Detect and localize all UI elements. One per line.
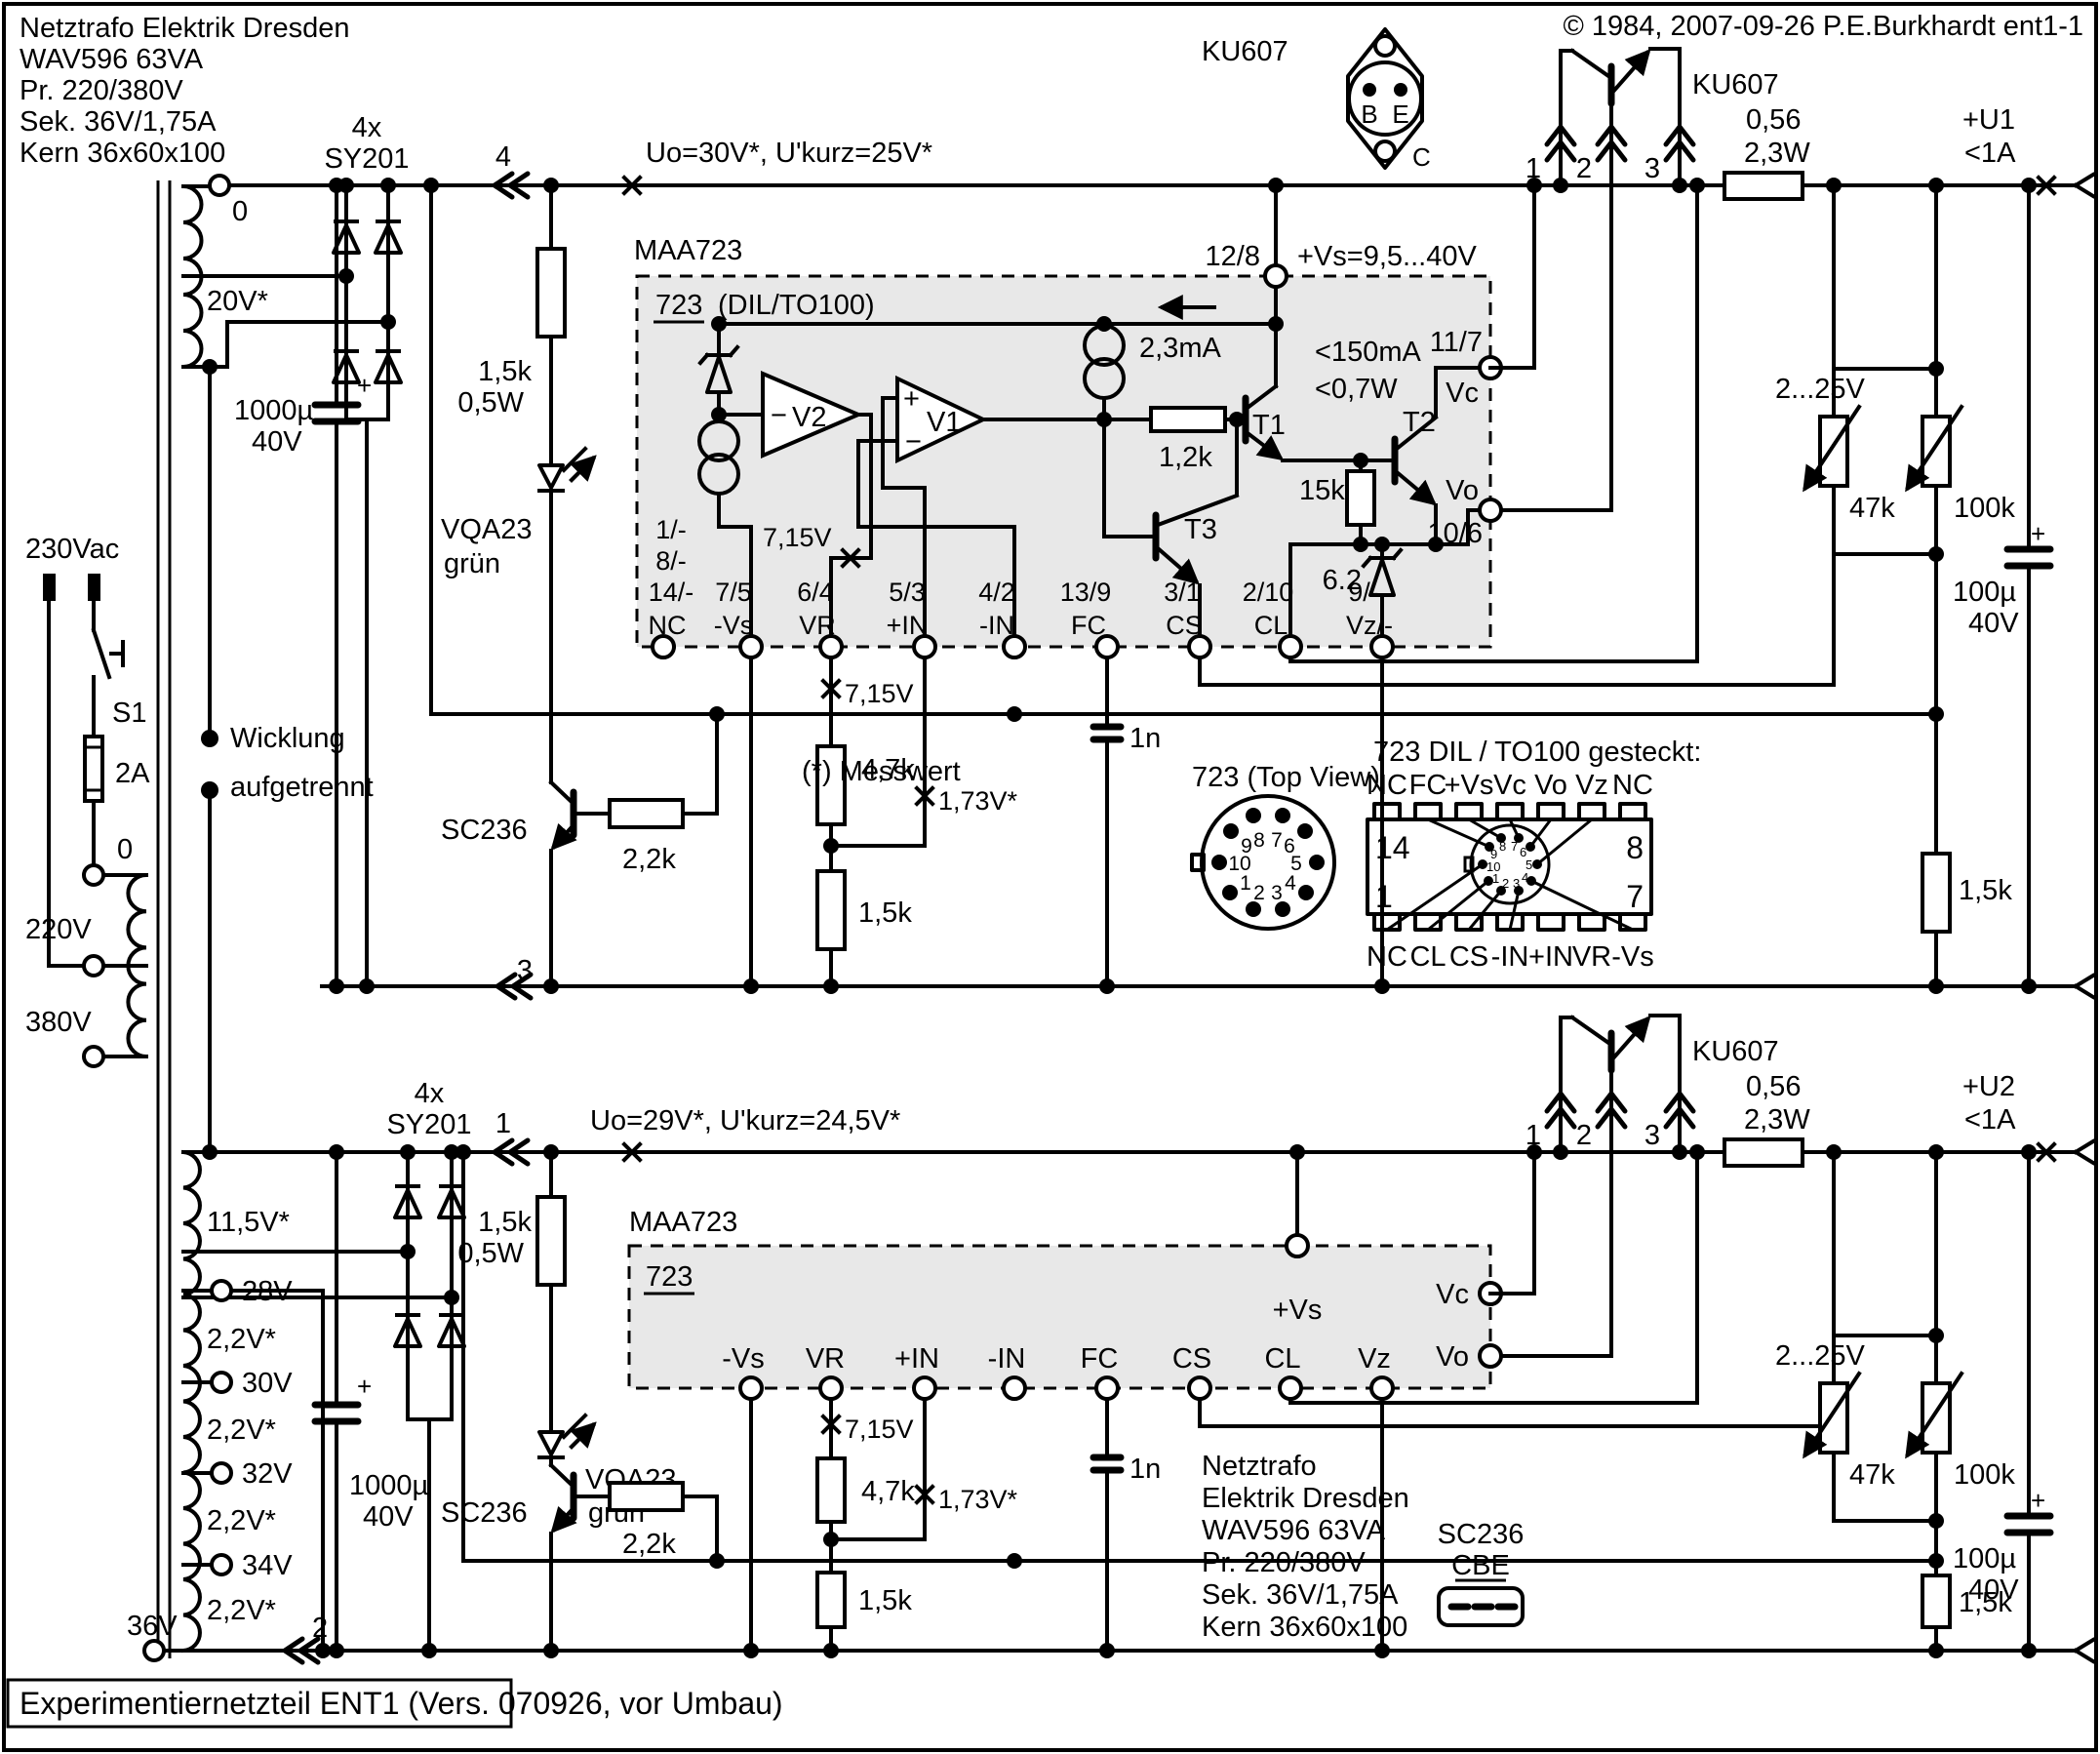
resistor-1k5 (537, 249, 565, 337)
conn-num: 1 (1525, 153, 1541, 184)
pin-vc-name: Vc (1446, 378, 1479, 409)
pin-name: CS (1172, 1343, 1211, 1375)
tr-label: SC236 (441, 1497, 528, 1529)
pin-vo (1480, 1345, 1501, 1367)
resistor-2k2 (610, 1483, 683, 1510)
r-div1-label: 4,7k (861, 1476, 915, 1507)
nc-num: 14/- (649, 578, 694, 607)
winding-0-label: 0 (232, 196, 248, 227)
tv-pin: 4 (1285, 872, 1296, 895)
dil-pin: 1 (1492, 871, 1499, 886)
v2-label: V2 (792, 402, 826, 433)
dil-pin: 7 (1511, 839, 1518, 854)
pin-name: CL (1264, 1343, 1300, 1375)
pin-name: -IN (988, 1343, 1026, 1375)
pin-vo-name: Vo (1446, 475, 1479, 506)
mains-voltage-label: 230Vac (25, 534, 119, 565)
plug-pin-icon (88, 574, 100, 601)
tap-220-terminal (84, 956, 103, 976)
ref-label: 7,15V (763, 523, 832, 552)
vr-divider: 7,15V 4,7k 1,73V* 1,5k (817, 647, 1018, 994)
tap-30v-terminal (212, 1373, 231, 1392)
minus-sign: − (905, 426, 922, 458)
r-div2-label: 1,5k (858, 1585, 912, 1616)
step-label: 2,2V* (207, 1595, 276, 1626)
out-label: +U1 (1962, 104, 2015, 136)
switch-blade (94, 630, 109, 677)
dil-bottom-label: -Vs (1611, 941, 1654, 973)
pot1-label: 47k (1849, 1459, 1895, 1491)
tv-pin: 7 (1271, 829, 1283, 852)
led-symbol (539, 1432, 563, 1455)
pin-name: -Vs (722, 1343, 765, 1375)
pkg-part: SC236 (1438, 1519, 1525, 1550)
uo-label: Uo=29V*, U'kurz=24,5V* (590, 1105, 900, 1136)
pin-vc-label: Vc (1436, 1279, 1469, 1310)
cap-value: 1000µ (349, 1470, 429, 1501)
bridge-qty: 4x (352, 112, 382, 143)
pin-num: 6/4 (797, 578, 834, 607)
pkg-pins: CBE (1451, 1550, 1510, 1581)
pin-num: 9/- (1348, 578, 1379, 607)
to3-c: C (1412, 142, 1431, 172)
r2-label: 15k (1299, 475, 1345, 506)
dil-corner: 7 (1626, 879, 1644, 914)
winding-20v: 0 20V* (183, 176, 396, 375)
pot-47k (1820, 417, 1847, 486)
tap-30v-label: 30V (242, 1368, 293, 1399)
dil-top-label: Vo (1534, 770, 1567, 801)
to3-e: E (1392, 100, 1408, 129)
tv-pin: 2 (1253, 882, 1265, 904)
plus-sign: + (357, 1372, 372, 1401)
fc-cap: 1n (1093, 1388, 1161, 1658)
topview-title: 723 (Top View) (1192, 762, 1380, 793)
tap-0-terminal (84, 865, 103, 885)
transformer-info-block-2: Netztrafo Elektrik Dresden WAV596 63VA P… (1202, 1451, 1409, 1643)
dil-top-label: NC (1367, 770, 1407, 801)
supply1-adjust: 2...25V 47k 100k 1,5k + 100µ 40V (1775, 178, 2050, 994)
v1-label: V1 (927, 407, 961, 438)
pin-num: 2/10 (1243, 578, 1294, 607)
supply2-adjust: 2...25V 47k 100k 1,5k + 100µ 40V (1775, 1144, 2050, 1658)
pin-name: Vz/- (1346, 611, 1393, 640)
supply2-pass: 1 2 3 KU607 0,56 2,3W +U2 <1A (1490, 1016, 2093, 1356)
pin-vs (1287, 1235, 1308, 1256)
resistor-0r56 (1724, 173, 1803, 199)
r-sense-label: 1,5k (1959, 875, 2012, 906)
title-box: Experimentiernetzteil ENT1 (Vers. 070926… (8, 1680, 783, 1727)
info-line: Kern 36x60x100 (1202, 1612, 1407, 1643)
fuse-label: 2A (115, 758, 150, 789)
info-line: Netztrafo (1202, 1451, 1317, 1482)
tap-32v-terminal (212, 1463, 231, 1483)
pin-name: CL (1254, 611, 1288, 640)
pin-name: +IN (887, 611, 929, 640)
dil-pin: 2 (1502, 876, 1509, 891)
tap-34v-terminal (212, 1555, 231, 1575)
resistor-1k5-div (817, 1573, 845, 1627)
tr-label: SC236 (441, 815, 528, 846)
tap-380-terminal (84, 1047, 103, 1066)
cap-out-value: 100µ (1953, 577, 2016, 608)
to3-part: KU607 (1202, 36, 1288, 67)
r-out-value: 0,56 (1746, 104, 1801, 136)
info-line: WAV596 63VA (1202, 1515, 1386, 1546)
copyright: © 1984, 2007-09-26 P.E.Burkhardt ent1-1 (1563, 11, 2083, 42)
fc-cap: 1n (1093, 647, 1161, 994)
pot-47k (1820, 1383, 1847, 1453)
cap-fc-label: 1n (1129, 723, 1161, 754)
ic-pkg: (DIL/TO100) (718, 290, 875, 321)
cap-1000u: + 1000µ 40V (315, 1144, 429, 1658)
in-meas: 1,73V* (938, 786, 1018, 816)
topview-diagram: 723 (Top View) 5 6 7 8 9 10 1 2 3 4 (1192, 762, 1380, 929)
r-out-watt: 2,3W (1744, 1104, 1810, 1136)
winding-split-note: Wicklung aufgetrennt (201, 367, 374, 1152)
t3-label: T3 (1184, 514, 1217, 545)
out-label: +U2 (1962, 1071, 2015, 1102)
conn-num: 1 (1525, 1120, 1541, 1151)
conn-num: 3 (1644, 153, 1660, 184)
info-line: Elektrik Dresden (1202, 1483, 1409, 1514)
pin-name: Vz (1358, 1343, 1391, 1375)
nc-num: 8/- (655, 546, 687, 576)
tap-36v-label: 36V (127, 1611, 178, 1642)
dil-bottom-label: VR (1572, 941, 1611, 973)
pin-name: FC (1071, 611, 1106, 640)
cap-value: 1000µ (234, 395, 314, 426)
dil-bottom-label: NC (1367, 941, 1407, 973)
pin-name: VR (799, 611, 836, 640)
info-line: Pr. 220/380V (20, 75, 183, 106)
imax-label: <150mA (1315, 337, 1421, 368)
info-line: Sek. 36V/1,75A (20, 106, 217, 138)
dil-pin: 6 (1520, 845, 1526, 859)
pin-num: 13/9 (1060, 578, 1112, 607)
output-connector (2076, 175, 2093, 196)
r-div2-label: 1,5k (858, 897, 912, 929)
step-label: 2,2V* (207, 1415, 276, 1446)
dil-pin: 3 (1513, 876, 1520, 891)
rail-end-connector (2076, 1640, 2093, 1661)
plus-sign: + (2031, 1486, 2045, 1515)
tv-pin: 6 (1284, 835, 1295, 857)
resistor-15k (1347, 471, 1374, 525)
winding-secondary: 11,5V* 28V 2,2V* 30V 2,2V* 32V 2,2V* 34V… (127, 1152, 452, 1660)
transformer-info-block: Netztrafo Elektrik Dresden WAV596 63VA P… (20, 13, 349, 169)
switch-label: S1 (112, 698, 146, 729)
dil-bottom-label: +IN (1528, 941, 1573, 973)
dil-corner: 8 (1626, 830, 1644, 865)
nc-num: 1/- (655, 515, 687, 544)
cap-fc-label: 1n (1129, 1454, 1161, 1485)
mains-neutral-wire (49, 601, 84, 966)
tap-0-label: 0 (117, 834, 133, 865)
connector-num: 4 (495, 141, 511, 173)
t1-label: T1 (1252, 410, 1286, 441)
in-meas: 1,73V* (938, 1485, 1018, 1514)
pot1-label: 47k (1849, 493, 1895, 524)
dil-pin: 4 (1522, 870, 1528, 885)
info-line: Sek. 36V/1,75A (1202, 1579, 1399, 1611)
pin-name: CS (1166, 611, 1203, 640)
conn-num: 3 (1644, 1120, 1660, 1151)
cap-voltage: 40V (252, 426, 302, 458)
pin-vs (1265, 265, 1287, 287)
pass-part: KU607 (1692, 69, 1779, 100)
winding-coil (183, 1152, 200, 1651)
step-label: 2,2V* (207, 1324, 276, 1355)
diode-sy201 (334, 221, 401, 382)
to3-b: B (1361, 100, 1377, 129)
led-color: grün (444, 548, 500, 579)
dil-corner: 14 (1375, 830, 1410, 865)
dil-corner: 1 (1375, 879, 1393, 914)
dil-top-label: Vc (1493, 770, 1526, 801)
rail-end-connector (2076, 976, 2093, 997)
to3-package: KU607 B E C (1202, 29, 1431, 172)
vs-range: +Vs=9,5...40V (1297, 241, 1477, 272)
resistor-sense (1922, 854, 1950, 932)
r-value: 1,5k (478, 1207, 532, 1238)
tap-28v-terminal (212, 1281, 231, 1300)
tap-380-label: 380V (25, 1007, 92, 1038)
messwert-note: (*) Messwert (802, 756, 961, 787)
info-line: Netztrafo Elektrik Dresden (20, 13, 349, 44)
dil-top-label: NC (1612, 770, 1653, 801)
winding-11v-label: 11,5V* (207, 1207, 290, 1238)
r-base-label: 2,2k (622, 1529, 676, 1560)
dil-bottom-label: -IN (1491, 941, 1529, 973)
supply1-pass: 1 2 3 KU607 0,56 2,3W +U1 <1A (1490, 49, 2093, 510)
pmax-label: <0,7W (1315, 374, 1398, 405)
mains-input: 230Vac S1 2A 0 220V 380V (25, 534, 150, 1066)
pin-num: 7/5 (715, 578, 752, 607)
winding-0-terminal (210, 176, 229, 195)
tv-pin: 1 (1240, 872, 1251, 895)
resistor-0r56 (1724, 1139, 1803, 1166)
pot2-label: 100k (1954, 1459, 2015, 1491)
dil-top-label: Vz (1575, 770, 1608, 801)
ref-meas: 7,15V (845, 1415, 914, 1444)
bridge-qty: 4x (415, 1078, 445, 1109)
pin-vo-num: 10/6 (1428, 518, 1483, 549)
pin-vs-label: +Vs (1273, 1295, 1323, 1326)
plus-sign: + (2031, 519, 2045, 548)
pin-vo (1480, 499, 1501, 521)
tv-pin: 8 (1253, 829, 1265, 852)
ic-name: MAA723 (634, 235, 742, 266)
tap-220-label: 220V (25, 914, 92, 945)
r-value: 1,5k (478, 356, 532, 387)
vr-divider: 7,15V 4,7k 1,73V* 1,5k (817, 1388, 1018, 1658)
step-label: 2,2V* (207, 1505, 276, 1536)
info-line: Pr. 220/380V (1202, 1547, 1366, 1578)
connector-num: 3 (517, 955, 533, 986)
conn-num: 2 (1576, 1120, 1592, 1151)
dil-diagram: 723 DIL / TO100 gesteckt: NC FC +Vs Vc V… (1367, 737, 1701, 973)
r-watt: 0,5W (457, 387, 524, 419)
pass-part: KU607 (1692, 1036, 1779, 1067)
pin-vc-num: 11/7 (1430, 327, 1483, 358)
pot-100k (1922, 417, 1950, 486)
plus-sign: + (357, 371, 372, 400)
output-connector (2076, 1141, 2093, 1163)
uo-label: Uo=30V*, U'kurz=25V* (646, 138, 932, 169)
sc236-package: SC236 CBE (1438, 1519, 1525, 1625)
cap-out-voltage: 40V (1968, 1575, 2019, 1606)
sheet-title: Experimentiernetzteil ENT1 (Vers. 070926… (20, 1686, 783, 1721)
led-symbol (539, 465, 563, 488)
t2-label: T2 (1403, 407, 1436, 438)
bridge-part: SY201 (324, 143, 409, 175)
pin-vs-num: 12/8 (1206, 241, 1260, 272)
note-line2: aufgetrennt (230, 772, 374, 803)
r1-label: 1,2k (1159, 442, 1212, 473)
bridge-part: SY201 (386, 1109, 471, 1140)
resistor-1k2 (1151, 408, 1225, 431)
connector-num: 1 (495, 1108, 511, 1139)
pin-name: VR (806, 1343, 845, 1375)
pin-num: 5/3 (889, 578, 926, 607)
dil-bottom-label: CL (1409, 941, 1446, 973)
note-line1: Wicklung (230, 723, 345, 754)
pot2-label: 100k (1954, 493, 2015, 524)
pin-name: -IN (979, 611, 1014, 640)
adj-range: 2...25V (1775, 374, 1866, 405)
ic-name: MAA723 (629, 1207, 737, 1238)
nc-name: NC (649, 611, 687, 640)
transistor-sc236: SC236 2,2k (441, 714, 717, 994)
r-out-watt: 2,3W (1744, 138, 1810, 169)
tv-pin: 3 (1271, 882, 1283, 904)
minus-sign: − (771, 400, 787, 431)
out-current: <1A (1964, 1104, 2016, 1136)
tap-34v-label: 34V (242, 1550, 293, 1581)
out-current: <1A (1964, 138, 2016, 169)
to3-flange (1348, 29, 1422, 168)
led-part: VQA23 (441, 514, 533, 545)
resistor-1k5 (537, 1197, 565, 1285)
pin-name: FC (1081, 1343, 1119, 1375)
resistor-sense (1922, 1575, 1950, 1627)
info-line: WAV596 63VA (20, 44, 204, 75)
ic1-maa723: MAA723 723 (DIL/TO100) 12/8 +Vs=9,5...40… (634, 178, 1501, 658)
conn-num: 2 (1576, 153, 1592, 184)
schematic-canvas: Netztrafo Elektrik Dresden WAV596 63VA P… (0, 0, 2100, 1754)
dil-top-label: FC (1409, 770, 1447, 801)
ic-type: 723 (655, 290, 702, 321)
page-border (4, 4, 2096, 1750)
plug-pin-icon (43, 574, 56, 601)
tap-36v-terminal (144, 1641, 164, 1660)
resistor-4k7 (817, 1458, 845, 1522)
resistor-2k2 (610, 800, 683, 827)
transformer-core (158, 180, 170, 1658)
r-base-label: 2,2k (622, 844, 676, 875)
dil-top-label: +Vs (1445, 770, 1494, 801)
pin-name: -Vs (714, 611, 754, 640)
dil-title: 723 DIL / TO100 gesteckt: (1373, 737, 1701, 768)
schematic-page: Netztrafo Elektrik Dresden WAV596 63VA P… (0, 0, 2100, 1754)
ibias-label: 2,3mA (1139, 333, 1221, 364)
cap-out-voltage: 40V (1968, 608, 2019, 639)
cap-out-value: 100µ (1953, 1543, 2016, 1575)
r-watt: 0,5W (457, 1238, 524, 1269)
cap-voltage: 40V (363, 1501, 414, 1533)
plus-sign: + (903, 383, 920, 415)
dil-pin: 8 (1499, 839, 1506, 854)
ic2-maa723: MAA723 723 +Vs Vc Vo -Vs VR +IN -IN FC C… (629, 1144, 1501, 1399)
r-out-value: 0,56 (1746, 1071, 1801, 1102)
pin-vo-label: Vo (1436, 1341, 1469, 1373)
pin-num: 3/1 (1164, 578, 1201, 607)
pot-100k (1922, 1383, 1950, 1453)
dil-bottom-label: CS (1449, 941, 1488, 973)
ic-type: 723 (646, 1261, 693, 1293)
ref-meas: 7,15V (845, 679, 914, 708)
connector-num: 2 (312, 1613, 328, 1644)
pin-num: 4/2 (978, 578, 1015, 607)
diode-sy201 (395, 1186, 464, 1346)
info-line: Kern 36x60x100 (20, 138, 225, 169)
led-chain: 1,5k 0,5W VQA23 grün (441, 178, 593, 782)
adj-range: 2...25V (1775, 1340, 1866, 1372)
switch-contact (111, 642, 123, 665)
resistor-1k5-div (817, 871, 845, 949)
pin-name: +IN (894, 1343, 939, 1375)
winding-20v-label: 20V* (207, 286, 268, 317)
tap-32v-label: 32V (242, 1458, 293, 1490)
